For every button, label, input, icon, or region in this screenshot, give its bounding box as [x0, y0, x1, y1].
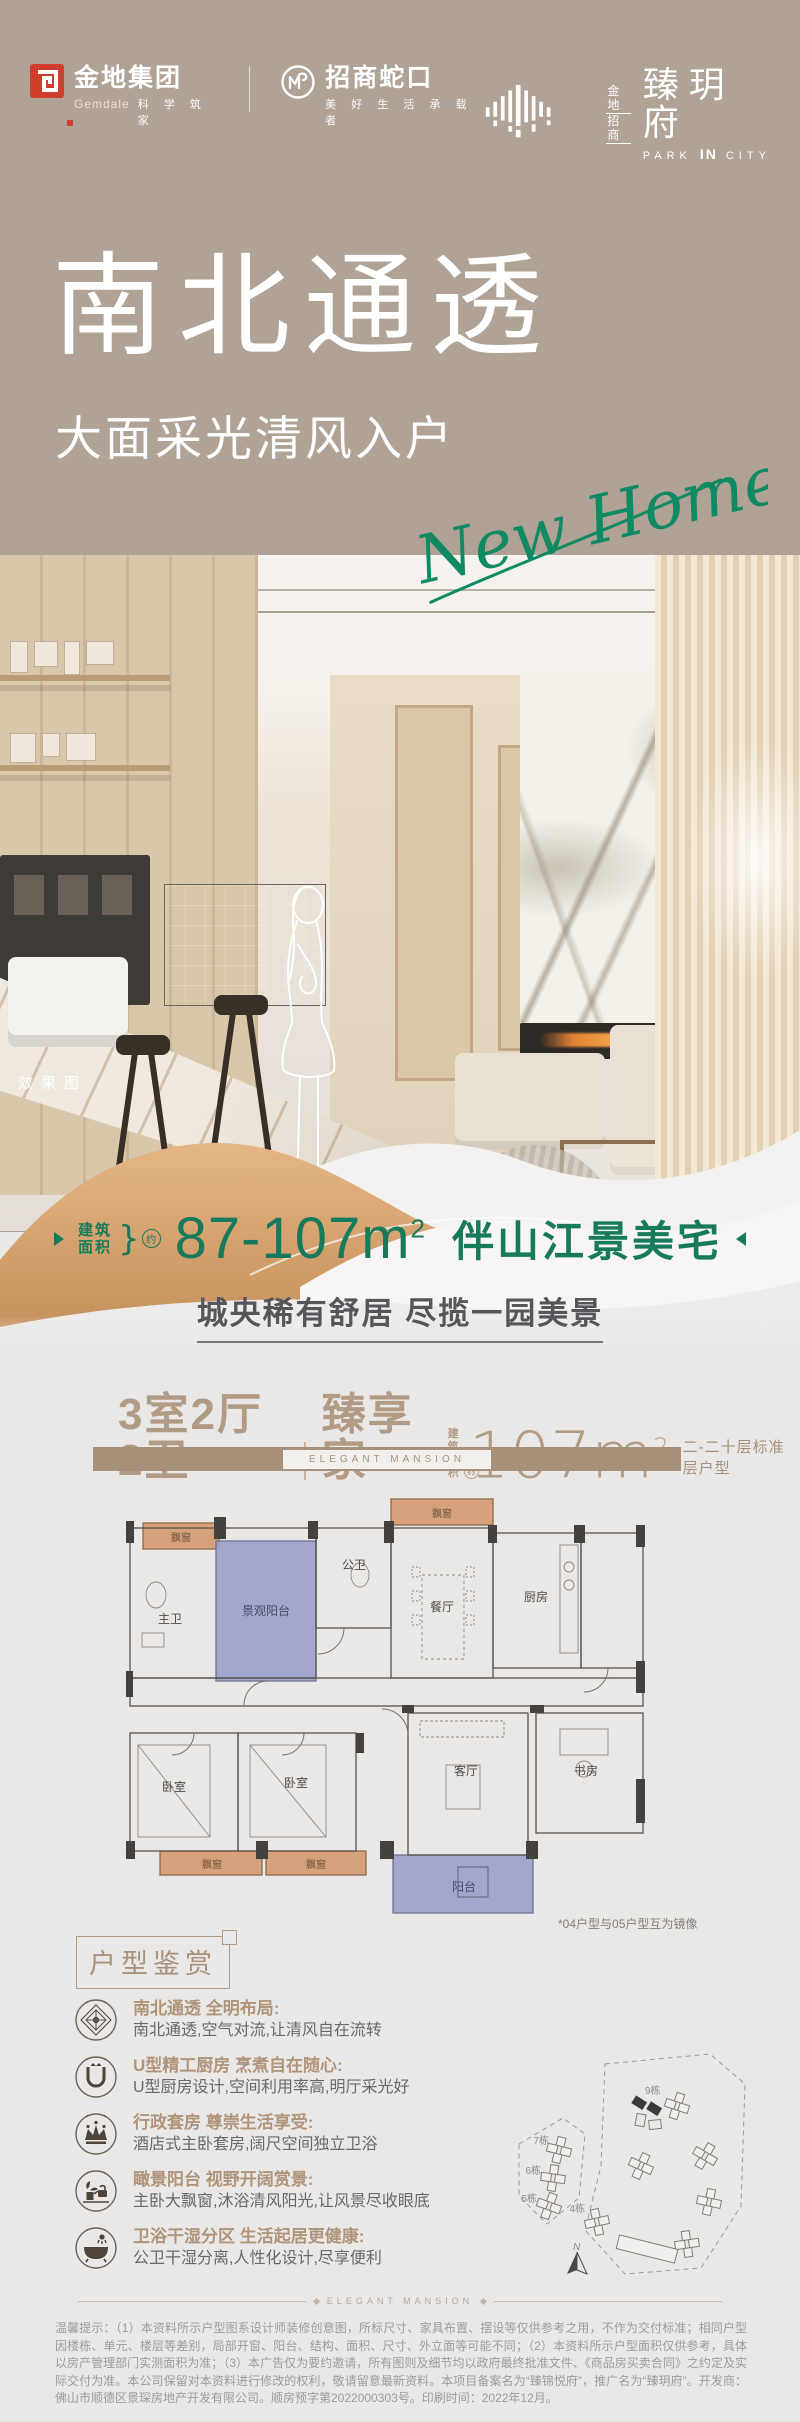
area-spec-line: 建筑 面积 } 约 87-107m2 伴山江景美宅: [0, 1205, 800, 1272]
label-public-bath: 公卫: [342, 1558, 366, 1572]
north-arrow-icon: N: [567, 2242, 587, 2274]
label-building4: 4栋: [569, 2202, 585, 2215]
public-bath-room: [316, 1528, 391, 1628]
brace-glyph: }: [118, 1219, 140, 1259]
site-plan: 7栋 6栋 5栋 4栋 9栋 N: [505, 2046, 795, 2286]
developer-logos: 金地集团 Gemdale 科 学 筑 家 招商蛇口 美 好 生 活 承 载 者: [30, 64, 484, 128]
label-bay-window: 飘窗: [432, 1507, 452, 1520]
logo-divider: [249, 66, 250, 112]
kitchen-shelf: [0, 765, 170, 771]
feature-title: 行政套房 尊崇生活享受:: [133, 2112, 377, 2133]
shelf-items: [10, 733, 96, 763]
list-item: 南北通透 全明布局: 南北通透,空气对流,让清风自在流转: [74, 1998, 494, 2042]
label-building5: 5栋: [521, 2192, 537, 2205]
bar-stool: [112, 1035, 174, 1225]
gemdale-logo: 金地集团 Gemdale 科 学 筑 家: [30, 64, 219, 128]
coffee-machine: [8, 957, 128, 1047]
slogan-line: 城央稀有舒居 尽揽一园美景: [0, 1288, 800, 1343]
hallway-band: [130, 1678, 643, 1706]
divider-line: [78, 2301, 306, 2302]
shelf-items: [10, 641, 114, 675]
triangle-left-icon: [736, 1232, 746, 1246]
render-watermark: 效果图: [18, 1072, 87, 1093]
footer-divider: ELEGANT MANSION: [78, 2296, 722, 2306]
label-study: 书房: [574, 1763, 598, 1778]
feature-list: 南北通透 全明布局: 南北通透,空气对流,让清风自在流转 U型精工厨房 烹煮自在…: [74, 1998, 494, 2283]
divider-line: [494, 2301, 722, 2302]
triangle-right-icon: [54, 1232, 64, 1246]
area-range: 87-107m2: [175, 1205, 426, 1272]
feature-desc: 公卫干湿分离,人性化设计,尽享便利: [133, 2249, 382, 2269]
project-name: 臻玥府: [643, 66, 772, 142]
unit-floors-note: 二-二十层标准层户型: [683, 1436, 800, 1478]
label-building9: 9栋: [645, 2084, 661, 2097]
cmsk-logo: 招商蛇口 美 好 生 活 承 载 者: [280, 64, 484, 128]
project-prefix-bottom: 招商: [606, 114, 630, 144]
commercial-strip: [616, 2235, 678, 2263]
building: [673, 2229, 700, 2258]
entry-corridor: [581, 1533, 643, 1668]
cmsk-name: 招商蛇口: [325, 64, 484, 92]
gemdale-name: 金地集团: [74, 64, 219, 92]
sub-title: 大面采光清风入户: [55, 400, 455, 469]
label-bedroom: 卧室: [162, 1779, 186, 1794]
mirror-note: *04户型与05户型互为镜像: [558, 1915, 697, 1932]
legal-disclaimer: 温馨提示：（1）本资料所示户型图系设计师装修创意图，所标尺寸、家具布置、摆设等仅…: [55, 2320, 747, 2408]
building: [688, 2139, 722, 2174]
new-home-script: New Home: [408, 448, 768, 638]
building: [625, 2149, 658, 2183]
header-logos: 金地集团 Gemdale 科 学 筑 家 招商蛇口 美 好 生 活 承 载 者: [30, 64, 772, 162]
north-label: N: [573, 2242, 581, 2253]
building-6: [539, 2163, 566, 2192]
divider-label: ELEGANT MANSION: [327, 2296, 473, 2306]
gemdale-tagline: 科 学 筑 家: [138, 96, 220, 128]
bedroom2: [238, 1733, 356, 1851]
interior-render: [0, 555, 800, 1231]
living-room: [408, 1713, 528, 1855]
label-bay-window: 飘窗: [306, 1858, 326, 1871]
list-item: U型精工厨房 烹煮自在随心: U型厨房设计,空间利用率高,明厅采光好: [74, 2055, 494, 2099]
gemdale-en: Gemdale: [74, 97, 130, 111]
building: [695, 2187, 724, 2217]
sheer-curtain: [655, 555, 800, 1231]
band-label: ELEGANT MANSION: [283, 1450, 491, 1469]
label-kitchen: 厨房: [524, 1589, 548, 1604]
woman-sketch: [248, 875, 358, 1231]
diamond-icon: [480, 2297, 487, 2304]
project-prefix: 金地 招商: [606, 84, 630, 144]
cmsk-m-icon: [280, 64, 316, 100]
project-logo: 金地 招商 臻玥府 PARK IN CITY: [484, 66, 772, 162]
feature-title: 瞰景阳台 视野开阔赏景:: [133, 2169, 430, 2190]
label-bay-window: 飘窗: [171, 1531, 191, 1544]
gemdale-icon: [30, 64, 64, 98]
skyline-bars-icon: [484, 83, 596, 145]
site-boundary-right: [585, 2054, 745, 2274]
label-bay-window: 飘窗: [202, 1858, 222, 1871]
list-item: 行政套房 尊崇生活享受: 酒店式主卧套房,阔尺空间独立卫浴: [74, 2112, 494, 2156]
hallway-door: [395, 705, 473, 1081]
compass-icon: [74, 1998, 118, 2042]
label-view-balcony: 景观阳台: [242, 1603, 290, 1618]
building-9-highlight: [631, 2095, 662, 2129]
label-building7: 7栋: [533, 2134, 549, 2147]
project-en-in: IN: [700, 146, 718, 162]
project-en-city: CITY: [726, 150, 771, 162]
corner-square-decoration: [222, 1930, 237, 1945]
kitchen-shelf: [0, 675, 170, 681]
label-bedroom: 卧室: [284, 1775, 308, 1790]
label-balcony: 阳台: [452, 1879, 476, 1894]
feature-desc: 主卧大飘窗,沐浴清风阳光,让风景尽收眼底: [133, 2192, 430, 2212]
feature-desc: 酒店式主卧套房,阔尺空间独立卫浴: [133, 2135, 377, 2155]
floor-plan: 飘窗 飘窗 主卫 景观阳台 公卫 餐厅 厨房 客厅 书房 卧室 卧室 飘窗 飘窗…: [108, 1483, 692, 1923]
script-text: New Home: [408, 448, 768, 600]
label-building6: 6栋: [525, 2164, 541, 2177]
feature-title: 卫浴干湿分区 生活起居更健康:: [133, 2226, 382, 2247]
project-en-park: PARK: [643, 150, 692, 162]
poster: 金地集团 Gemdale 科 学 筑 家 招商蛇口 美 好 生 活 承 载 者: [0, 0, 800, 2422]
balcony-plant-icon: [74, 2169, 118, 2213]
wall-segments: [126, 1517, 645, 1859]
main-title: 南北通透: [52, 248, 556, 368]
list-item: 卫浴干湿分区 生活起居更健康: 公卫干湿分离,人性化设计,尽享便利: [74, 2226, 494, 2270]
area-feature-text: 伴山江景美宅: [452, 1208, 722, 1269]
diamond-icon: [313, 2297, 320, 2304]
feature-title: U型精工厨房 烹煮自在随心:: [133, 2055, 409, 2076]
kitchen-u-icon: [74, 2055, 118, 2099]
feature-title: 南北通透 全明布局:: [133, 1998, 382, 2019]
approx-seal: 约: [142, 1229, 161, 1248]
cmsk-tagline: 美 好 生 活 承 载 者: [325, 96, 484, 128]
building: [662, 2090, 693, 2122]
gemdale-dot-icon: [67, 120, 73, 126]
building-5: [533, 2190, 564, 2223]
appreciation-title: 户型鉴赏: [76, 1936, 230, 1989]
armchair: [455, 1053, 605, 1149]
elegant-mansion-band: ELEGANT MANSION: [93, 1447, 681, 1471]
area-label: 建筑 面积: [78, 1222, 112, 1256]
project-en-name: PARK IN CITY: [643, 146, 771, 162]
label-dining: 餐厅: [430, 1599, 454, 1614]
feature-desc: 南北通透,空气对流,让清风自在流转: [133, 2021, 382, 2041]
feature-desc: U型厨房设计,空间利用率高,明厅采光好: [133, 2078, 409, 2098]
project-prefix-top: 金地: [606, 84, 630, 114]
list-item: 瞰景阳台 视野开阔赏景: 主卧大飘窗,沐浴清风阳光,让风景尽收眼底: [74, 2169, 494, 2213]
label-master-bath: 主卫: [158, 1612, 182, 1626]
label-living: 客厅: [454, 1763, 478, 1778]
bathtub-icon: [74, 2226, 118, 2270]
crown-icon: [74, 2112, 118, 2156]
